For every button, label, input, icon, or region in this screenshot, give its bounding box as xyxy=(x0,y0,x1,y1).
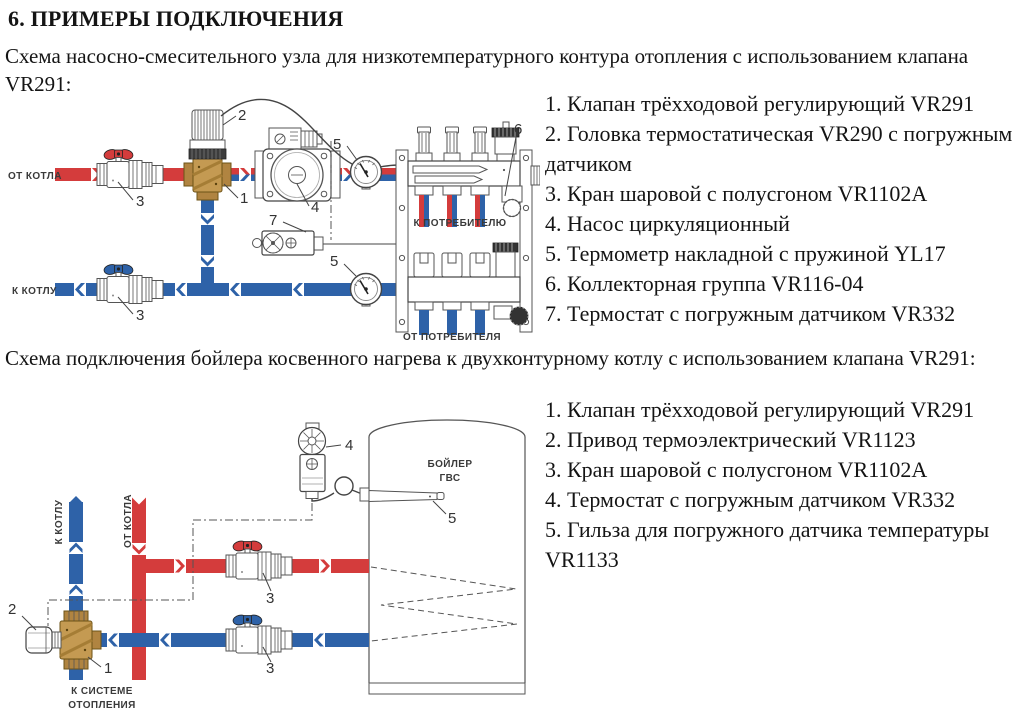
legend-item: 2. Привод термоэлектрический VR1123 xyxy=(545,425,1021,455)
legend-item: 6. Коллекторная группа VR116-04 xyxy=(545,269,1021,299)
intro-paragraph-2: Схема подключения бойлера косвенного наг… xyxy=(5,344,1015,372)
diagram-pump-mixing-unit: ОТ КОТЛА К КОТЛУ К ПОТРЕБИТЕЛЮ ОТ ПОТРЕБ… xyxy=(0,95,540,345)
ball-valve-return xyxy=(97,263,163,303)
manifold-label-from-consumer: ОТ ПОТРЕБИТЕЛЯ xyxy=(403,332,501,343)
callout-4: 4 xyxy=(345,437,353,454)
thermostatic-head xyxy=(189,110,226,159)
callout-1: 1 xyxy=(104,660,112,677)
flow-arrow xyxy=(74,282,86,297)
flow-arrow xyxy=(174,559,186,574)
immersion-thermostat xyxy=(299,423,326,499)
callout-3: 3 xyxy=(266,590,274,607)
boiler-label-line1: БОЙЛЕР xyxy=(428,457,473,470)
section-heading: 6. ПРИМЕРЫ ПОДКЛЮЧЕНИЯ xyxy=(8,6,344,32)
manifold-outlets-return xyxy=(415,302,489,335)
drain-valve xyxy=(494,306,528,325)
callout-4: 4 xyxy=(311,199,319,216)
flow-arrow xyxy=(175,282,187,297)
legend-item: 7. Термостат с погружным датчиком VR332 xyxy=(545,299,1021,329)
bypass-pipe-vertical xyxy=(200,196,215,296)
flow-arrow xyxy=(200,213,215,225)
manifold-label-to-consumer: К ПОТРЕБИТЕЛЮ xyxy=(414,218,507,229)
pipe-label-to-boiler: К КОТЛУ xyxy=(12,286,57,297)
legend-item: 3. Кран шаровой с полусгоном VR1102A xyxy=(545,455,1021,485)
callout-6: 6 xyxy=(514,121,522,138)
flow-arrow xyxy=(229,282,241,297)
callout-5: 5 xyxy=(448,510,456,527)
callout-5: 5 xyxy=(330,253,338,270)
legend-diagram1: 1. Клапан трёхходовой регулирующий VR291… xyxy=(545,89,1021,329)
flow-arrow xyxy=(239,168,251,182)
flow-meters xyxy=(416,127,488,162)
callout-3: 3 xyxy=(136,193,144,210)
legend-item: 1. Клапан трёхходовой регулирующий VR291 xyxy=(545,395,1021,425)
legend-item: 5. Термометр накладной с пружиной YL17 xyxy=(545,239,1021,269)
flow-arrow xyxy=(292,282,304,297)
legend-item: 2. Головка термостатическая VR290 с погр… xyxy=(545,119,1021,179)
legend-diagram2: 1. Клапан трёхходовой регулирующий VR291… xyxy=(545,395,1021,575)
pipe-label-to-boiler: К КОТЛУ xyxy=(54,499,65,544)
legend-item: 4. Термостат с погружным датчиком VR332 xyxy=(545,485,1021,515)
callout-1: 1 xyxy=(240,190,248,207)
document-page: 6. ПРИМЕРЫ ПОДКЛЮЧЕНИЯ Схема насосно-сме… xyxy=(0,0,1024,712)
pipe-label-from-boiler: ОТ КОТЛА xyxy=(8,171,62,182)
legend-item: 1. Клапан трёхходовой регулирующий VR291 xyxy=(545,89,1021,119)
legend-item: 3. Кран шаровой с полусгоном VR1102A xyxy=(545,179,1021,209)
flow-arrow xyxy=(69,584,84,596)
heating-system-label-line1: К СИСТЕМЕ xyxy=(71,686,133,697)
callout-2: 2 xyxy=(8,601,16,618)
thermometer-gauge-return xyxy=(351,274,382,307)
ball-valve-dhw-supply xyxy=(226,540,292,580)
three-way-valve xyxy=(52,611,101,669)
flow-arrow xyxy=(319,559,331,574)
flow-arrow xyxy=(69,542,84,554)
diagram-indirect-boiler: К КОТЛУ ОТ КОТЛА БОЙЛЕР ГВС К СИСТЕМЕ ОТ… xyxy=(0,395,545,712)
callout-3: 3 xyxy=(266,660,274,677)
thermoelectric-actuator xyxy=(26,627,52,653)
heating-system-label-line2: ОТОПЛЕНИЯ xyxy=(68,700,136,711)
flow-arrow xyxy=(200,255,215,267)
flow-arrow xyxy=(107,633,119,648)
callout-3: 3 xyxy=(136,307,144,324)
legend-item: 4. Насос циркуляционный xyxy=(545,209,1021,239)
ball-valve-dhw-return xyxy=(226,614,292,654)
legend-item: 5. Гильза для погружного датчика темпера… xyxy=(545,515,1021,575)
circulation-pump xyxy=(255,128,340,201)
callout-2: 2 xyxy=(238,107,246,124)
three-way-valve xyxy=(184,158,231,200)
manifold-valve-caps xyxy=(414,253,490,277)
callout-7: 7 xyxy=(269,212,277,229)
ball-valve-supply xyxy=(97,148,163,188)
air-vent-bottom xyxy=(493,243,518,277)
flow-arrow xyxy=(313,633,325,648)
callout-5: 5 xyxy=(333,136,341,153)
boiler-label-line2: ГВС xyxy=(440,473,461,484)
flow-arrow xyxy=(159,633,171,648)
thermometer-gauge-supply xyxy=(351,157,382,190)
pipe-label-from-boiler: ОТ КОТЛА xyxy=(123,494,134,548)
